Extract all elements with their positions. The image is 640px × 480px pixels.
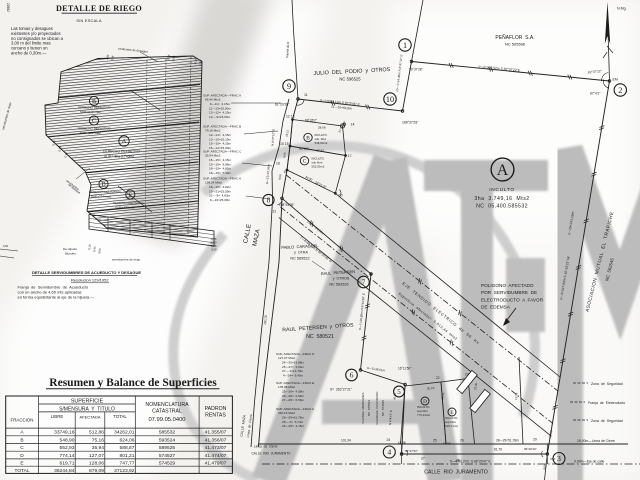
svg-text:96°46'42": 96°46'42" — [524, 447, 537, 451]
svg-text:128,06: 128,06 — [89, 461, 104, 467]
svg-text:B: B — [20, 437, 23, 443]
svg-text:DETALLE SERVIDUMBRES DE ACUEDU: DETALLE SERVIDUMBRES DE ACUEDUCTO Y DESA… — [32, 270, 141, 275]
svg-text:Zona de Seguridad: Zona de Seguridad — [591, 382, 623, 386]
svg-text:PM: PM — [551, 457, 556, 461]
svg-text:NC 505596: NC 505596 — [505, 42, 526, 47]
svg-text:Franja de Electroducto: Franja de Electroducto — [588, 401, 625, 405]
svg-text:A: A — [122, 138, 127, 145]
svg-text:28,68: 28,68 — [318, 126, 326, 130]
svg-text:CALLE RIO JURAMENTO: CALLE RIO JURAMENTO — [424, 470, 488, 476]
svg-text:D: D — [423, 399, 427, 405]
svg-text:Blondes: Blondes — [65, 251, 76, 255]
svg-text:20,62: 20,62 — [427, 386, 435, 391]
svg-text:Zona de Seguridad: Zona de Seguridad — [591, 419, 623, 423]
svg-text:624,06: 624,06 — [120, 437, 135, 443]
svg-text:21: 21 — [273, 210, 277, 214]
svg-text:87°4'2": 87°4'2" — [590, 92, 601, 96]
svg-text:SUP.= 3ha 3.745m2: SUP.= 3ha 3.745m2 — [104, 155, 134, 159]
svg-text:75,16: 75,16 — [92, 437, 105, 443]
svg-text:NC 575524: NC 575524 — [367, 400, 371, 416]
svg-text:574527: 574527 — [159, 453, 176, 459]
svg-text:3: 3 — [557, 454, 561, 463]
svg-text:12— 9=15,00m: 12— 9=15,00m — [209, 115, 231, 119]
svg-text:11: 11 — [304, 93, 308, 97]
svg-text:774,14: 774,14 — [60, 453, 75, 459]
svg-text:35,94 Mts2: 35,94 Mts2 — [205, 154, 221, 158]
svg-text:593524: 593524 — [159, 437, 176, 443]
svg-text:24: 24 — [387, 438, 391, 442]
svg-text:B: B — [306, 135, 310, 141]
svg-text:2: 2 — [618, 86, 622, 95]
svg-text:A: A — [497, 162, 509, 179]
svg-text:552,93m2: 552,93m2 — [312, 165, 325, 169]
svg-text:Resumen y Balance de Superfici: Resumen y Balance de Superficies — [49, 377, 217, 389]
svg-text:27—25= 6,53m: 27—25= 6,53m — [282, 398, 305, 402]
svg-text:EM: EM — [613, 78, 618, 82]
svg-text:79,16 Mts2: 79,16 Mts2 — [205, 129, 221, 133]
svg-text:41.473/07: 41.473/07 — [205, 445, 227, 451]
svg-text:3ha 3.749,16 Mts2: 3ha 3.749,16 Mts2 — [474, 196, 529, 202]
svg-text:589525: 589525 — [159, 445, 176, 451]
svg-text:Resolucion 129/1952: Resolucion 129/1952 — [71, 278, 109, 283]
svg-text:33749,16: 33749,16 — [54, 430, 75, 436]
svg-text:90°0'0": 90°0'0" — [299, 147, 309, 151]
svg-text:SIN ESCALA: SIN ESCALA — [76, 19, 102, 23]
svg-text:512,86: 512,86 — [89, 430, 104, 436]
svg-text:18—15= 7,43m: 18—15= 7,43m — [209, 171, 232, 175]
svg-text:NC 580521: NC 580521 — [306, 334, 334, 340]
svg-text:99°37'28": 99°37'28" — [409, 68, 423, 72]
svg-text:15,88: 15,88 — [398, 441, 406, 445]
svg-text:NC 583526: NC 583526 — [329, 283, 348, 287]
svg-text:SUP.=774 mts2: SUP.=774 mts2 — [91, 194, 111, 198]
svg-text:68°26'2": 68°26'2" — [305, 119, 317, 123]
svg-text:CHARLES COLORADO: CHARLES COLORADO — [375, 391, 379, 425]
svg-text:E: E — [20, 461, 23, 467]
svg-text:66,46 Mts2: 66,46 Mts2 — [205, 98, 221, 102]
svg-text:D: D — [101, 182, 106, 188]
svg-text:18: 18 — [276, 162, 280, 166]
svg-text:43,81: 43,81 — [393, 392, 398, 400]
svg-text:POLIGONO AFECTADO: POLIGONO AFECTADO — [481, 283, 534, 288]
svg-text:POR SERVIDUMBRE DE: POR SERVIDUMBRE DE — [481, 290, 537, 295]
svg-text:N.Mg.: N.Mg. — [617, 7, 627, 11]
svg-text:FRACCION: FRACCION — [11, 418, 34, 423]
svg-text:0,00m—Eje de calle: 0,00m—Eje de calle — [574, 460, 604, 464]
svg-text:y OTROS: y OTROS — [333, 277, 350, 281]
svg-text:B: B — [92, 99, 96, 105]
svg-text:LIBRE: LIBRE — [51, 414, 64, 419]
svg-text:NC 574525: NC 574525 — [381, 400, 385, 416]
svg-text:158,24 Mts2: 158,24 Mts2 — [205, 181, 222, 185]
svg-text:127,07: 127,07 — [89, 453, 104, 459]
svg-text:574529: 574529 — [159, 461, 176, 467]
svg-text:8: 8 — [267, 196, 271, 205]
svg-text:340,16 Mts2: 340,16 Mts2 — [278, 411, 295, 415]
svg-text:27: 27 — [421, 457, 425, 461]
svg-text:DERECHO DEFINITIVO: DERECHO DEFINITIVO — [103, 150, 140, 154]
svg-text:41.356/07: 41.356/07 — [205, 437, 227, 443]
svg-text:22: 22 — [436, 376, 440, 380]
svg-text:ELECTRODUCTO A FAVOR: ELECTRODUCTO A FAVOR — [481, 297, 544, 302]
svg-text:De Hijuela: De Hijuela — [63, 247, 77, 251]
svg-text:servidumbre de riego: servidumbre de riego — [112, 258, 141, 262]
svg-text:SUPERFICIE: SUPERFICIE — [71, 399, 104, 405]
svg-text:PEÑAFLOR S.A.: PEÑAFLOR S.A. — [495, 34, 534, 41]
svg-text:10: 10 — [386, 95, 394, 104]
svg-text:C: C — [20, 445, 24, 451]
svg-text:36244,84: 36244,84 — [54, 468, 75, 474]
svg-text:07.99.05.0400: 07.99.05.0400 — [148, 417, 185, 423]
svg-text:801,21: 801,21 — [120, 453, 135, 459]
svg-text:14: 14 — [351, 123, 355, 127]
svg-text:DERECHO DEFINITIVO: DERECHO DEFINITIVO — [78, 127, 111, 131]
svg-text:1: 1 — [403, 41, 407, 50]
svg-text:9: 9 — [287, 82, 291, 91]
svg-text:17: 17 — [348, 154, 352, 158]
svg-text:28—29=51,78m: 28—29=51,78m — [496, 439, 519, 443]
svg-text:548,90m2: 548,90m2 — [315, 141, 328, 145]
svg-text:NOMENCLATURA: NOMENCLATURA — [145, 402, 189, 408]
svg-text:SUP.= 620 mts: SUP.= 620 mts — [115, 205, 135, 209]
svg-text:0,00: 0,00 — [3, 244, 9, 248]
svg-text:S/MENSURA Y TITULO: S/MENSURA Y TITULO — [59, 406, 115, 412]
svg-text:PADRON: PADRON — [205, 406, 227, 412]
svg-text:548,90: 548,90 — [60, 437, 75, 443]
svg-text:51,76: 51,76 — [494, 448, 502, 452]
svg-text:22662: 22662 — [6, 3, 10, 12]
svg-text:747,77: 747,77 — [120, 461, 135, 467]
svg-text:41.355/07: 41.355/07 — [205, 430, 227, 436]
svg-text:619,71: 619,71 — [60, 461, 75, 467]
svg-text:AFECTADA: AFECTADA — [79, 414, 100, 419]
svg-text:26: 26 — [460, 439, 464, 443]
svg-text:585532: 585532 — [159, 430, 176, 436]
svg-text:25,87: 25,87 — [317, 149, 325, 153]
svg-text:Linea de Cierre: Linea de Cierre — [254, 445, 278, 449]
svg-text:CHANKA MERCEDES: CHANKA MERCEDES — [361, 392, 365, 423]
svg-text:35,94: 35,94 — [92, 445, 105, 451]
svg-text:41.479/07: 41.479/07 — [205, 461, 227, 467]
svg-text:4: 4 — [387, 448, 391, 457]
svg-text:TOTAL: TOTAL — [14, 468, 29, 474]
svg-text:619,71m2: 619,71m2 — [445, 424, 458, 428]
svg-text:E: E — [450, 410, 453, 416]
svg-text:5: 5 — [397, 388, 401, 396]
svg-text:CALLE RIO JURAMENTO: CALLE RIO JURAMENTO — [252, 452, 292, 456]
svg-text:15,88: 15,88 — [443, 442, 451, 446]
svg-text:19,00m—Linea de Cierre: 19,00m—Linea de Cierre — [577, 439, 615, 443]
svg-text:0,00: 0,00 — [211, 248, 217, 252]
svg-text:NC 05.400.585532: NC 05.400.585532 — [476, 204, 528, 210]
svg-text:5—4=91,27m S 86°29'47" E: 5—4=91,27m S 86°29'47" E — [450, 460, 491, 464]
svg-text:127,07 Mts2: 127,07 Mts2 — [278, 356, 295, 360]
svg-text:DERECHO DEFINITIVO: DERECHO DEFINITIVO — [78, 106, 111, 110]
svg-text:C: C — [92, 119, 96, 125]
svg-text:16°11'50": 16°11'50" — [398, 367, 411, 371]
svg-text:RENTAS: RENTAS — [205, 412, 226, 418]
svg-text:135,06 Mts2: 135,06 Mts2 — [278, 385, 295, 389]
svg-text:101,34: 101,34 — [341, 439, 351, 443]
svg-text:588,87: 588,87 — [120, 445, 135, 451]
svg-text:S= 263°27'21": S= 263°27'21" — [330, 388, 353, 392]
svg-text:879,09: 879,09 — [89, 468, 104, 474]
svg-text:25: 25 — [433, 439, 437, 443]
svg-text:26—25= 4,15m: 26—25= 4,15m — [282, 424, 305, 428]
svg-text:y OTRA: y OTRA — [294, 251, 308, 255]
svg-text:168°51'35": 168°51'35" — [279, 203, 294, 207]
svg-text:15 15: 15 15 — [280, 142, 289, 146]
svg-text:4—24= 6,45m: 4—24= 6,45m — [282, 373, 304, 377]
svg-text:SUP.=549 mts2: SUP.=549 mts2 — [80, 110, 101, 114]
svg-text:TOTAL: TOTAL — [113, 414, 127, 419]
svg-text:552,93: 552,93 — [60, 445, 75, 451]
svg-text:CATASTRAL: CATASTRAL — [152, 408, 182, 414]
svg-text:6: 6 — [350, 371, 354, 380]
svg-text:C: C — [303, 159, 307, 165]
svg-text:168°37'28": 168°37'28" — [402, 121, 419, 125]
svg-text:37123,92: 37123,92 — [114, 468, 135, 474]
svg-text:12 13: 12 13 — [286, 115, 295, 119]
svg-text:34262,01: 34262,01 — [114, 430, 135, 436]
svg-text:D: D — [20, 453, 24, 459]
svg-text:DE EDEMSA: DE EDEMSA — [481, 305, 511, 310]
svg-text:INCULTO: INCULTO — [489, 187, 515, 193]
svg-text:29: 29 — [533, 438, 537, 442]
svg-text:NC 596525: NC 596525 — [339, 77, 361, 82]
svg-text:en forma equidistante al eje d: en forma equidistante al eje de la hijue… — [18, 295, 95, 300]
svg-text:DETALLE DE RIEGO: DETALLE DE RIEGO — [56, 4, 142, 13]
svg-text:NC 589522: NC 589522 — [290, 257, 309, 261]
svg-text:9—16=25,08m: 9—16=25,08m — [209, 198, 231, 202]
svg-text:41.474/07: 41.474/07 — [205, 453, 227, 459]
svg-text:ancho de 0,30m.—: ancho de 0,30m.— — [11, 51, 47, 56]
svg-text:SUP.=552 mts2: SUP.=552 mts2 — [80, 131, 101, 135]
svg-text:774,14m2: 774,14m2 — [417, 413, 430, 417]
